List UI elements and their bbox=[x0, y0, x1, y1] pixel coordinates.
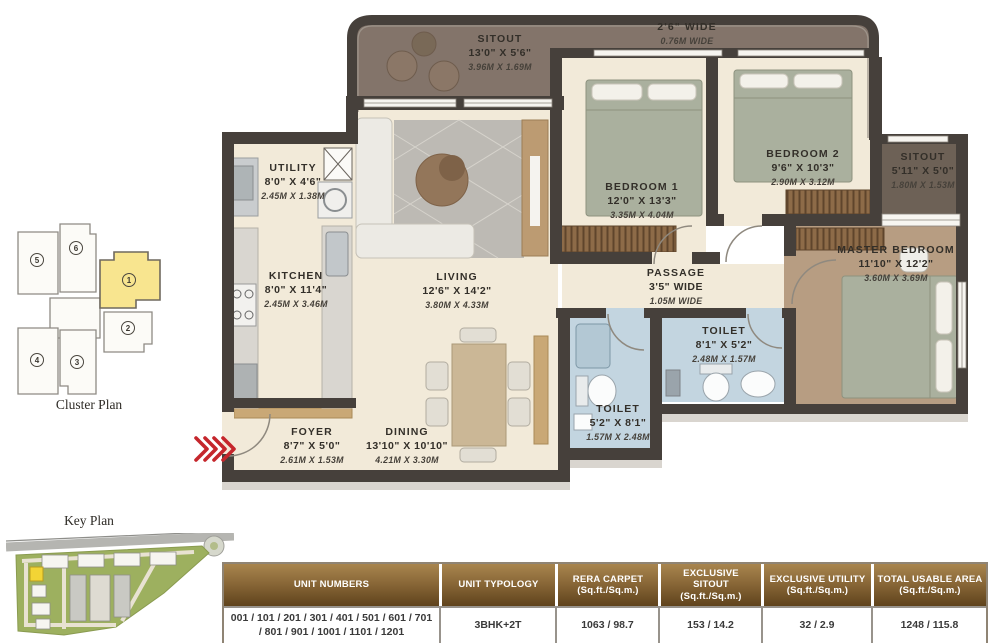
table-cell-exclusive-utility: 32 / 2.9 bbox=[761, 606, 871, 643]
room-label-master-bedroom: MASTER BEDROOM 11'10" X 12'2" 3.60M X 3.… bbox=[837, 244, 954, 284]
table-header-total-usable-area: TOTAL USABLE AREA (Sq.ft./Sq.m.) bbox=[871, 564, 986, 606]
table-cell-total-usable-area: 1248 / 115.8 bbox=[871, 606, 986, 643]
table-cell-rera-carpet: 1063 / 98.7 bbox=[555, 606, 658, 643]
room-label-bedroom2: BEDROOM 2 9'6" X 10'3" 2.90M X 3.12M bbox=[766, 148, 840, 188]
area-table-header-row: UNIT NUMBERS UNIT TYPOLOGY RERA CARPET (… bbox=[224, 564, 986, 606]
table-header-rera-carpet: RERA CARPET (Sq.ft./Sq.m.) bbox=[555, 564, 658, 606]
room-label-walkway: 2'6" WIDE 0.76M WIDE bbox=[657, 21, 716, 47]
table-header-unit-numbers: UNIT NUMBERS bbox=[224, 564, 439, 606]
room-label-toilet-right: TOILET 8'1" X 5'2" 2.48M X 1.57M bbox=[692, 325, 756, 365]
table-cell-exclusive-sitout: 153 / 14.2 bbox=[658, 606, 761, 643]
room-label-dining: DINING 13'10" X 10'10" 4.21M X 3.30M bbox=[366, 426, 448, 466]
room-label-utility: UTILITY 8'0" X 4'6" 2.45M X 1.38M bbox=[261, 162, 325, 202]
floor-plan-drawing bbox=[0, 0, 1000, 643]
table-header-exclusive-sitout: EXCLUSIVE SITOUT (Sq.ft./Sq.m.) bbox=[658, 564, 761, 606]
room-label-sitout-right: SITOUT 5'11" X 5'0" 1.80M X 1.53M bbox=[891, 151, 955, 191]
table-header-exclusive-utility: EXCLUSIVE UTILITY (Sq.ft./Sq.m.) bbox=[761, 564, 871, 606]
area-table-data-row: 001 / 101 / 201 / 301 / 401 / 501 / 601 … bbox=[224, 606, 986, 643]
table-cell-unit-typology: 3BHK+2T bbox=[439, 606, 555, 643]
room-label-kitchen: KITCHEN 8'0" X 11'4" 2.45M X 3.46M bbox=[264, 270, 328, 310]
key-plan-caption: Key Plan bbox=[64, 513, 114, 529]
table-header-unit-typology: UNIT TYPOLOGY bbox=[439, 564, 555, 606]
room-label-bedroom1: BEDROOM 1 12'0" X 13'3" 3.35M X 4.04M bbox=[605, 181, 679, 221]
floorplan-brochure-page: SITOUT 13'0" X 5'6" 3.96M X 1.69M 2'6" W… bbox=[0, 0, 1000, 643]
room-label-passage: PASSAGE 3'5" WIDE 1.05M WIDE bbox=[647, 267, 705, 307]
room-label-toilet-bottom: TOILET 5'2" X 8'1" 1.57M X 2.48M bbox=[586, 403, 650, 443]
room-label-sitout-top: SITOUT 13'0" X 5'6" 3.96M X 1.69M bbox=[468, 33, 532, 73]
table-cell-unit-numbers: 001 / 101 / 201 / 301 / 401 / 501 / 601 … bbox=[224, 606, 439, 643]
room-label-foyer: FOYER 8'7" X 5'0" 2.61M X 1.53M bbox=[280, 426, 344, 466]
room-label-living: LIVING 12'6" X 14'2" 3.80M X 4.33M bbox=[422, 271, 491, 311]
cluster-plan-caption: Cluster Plan bbox=[56, 397, 122, 413]
area-table: UNIT NUMBERS UNIT TYPOLOGY RERA CARPET (… bbox=[222, 562, 988, 643]
